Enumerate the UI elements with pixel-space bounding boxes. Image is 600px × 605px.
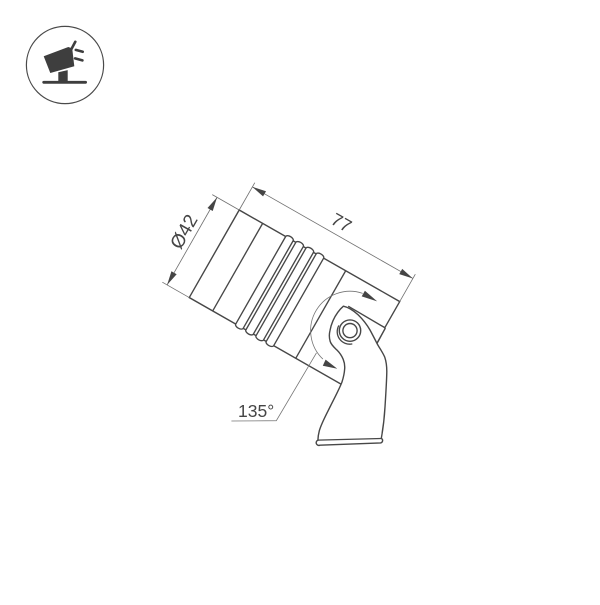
svg-text:135°: 135° (238, 401, 274, 421)
